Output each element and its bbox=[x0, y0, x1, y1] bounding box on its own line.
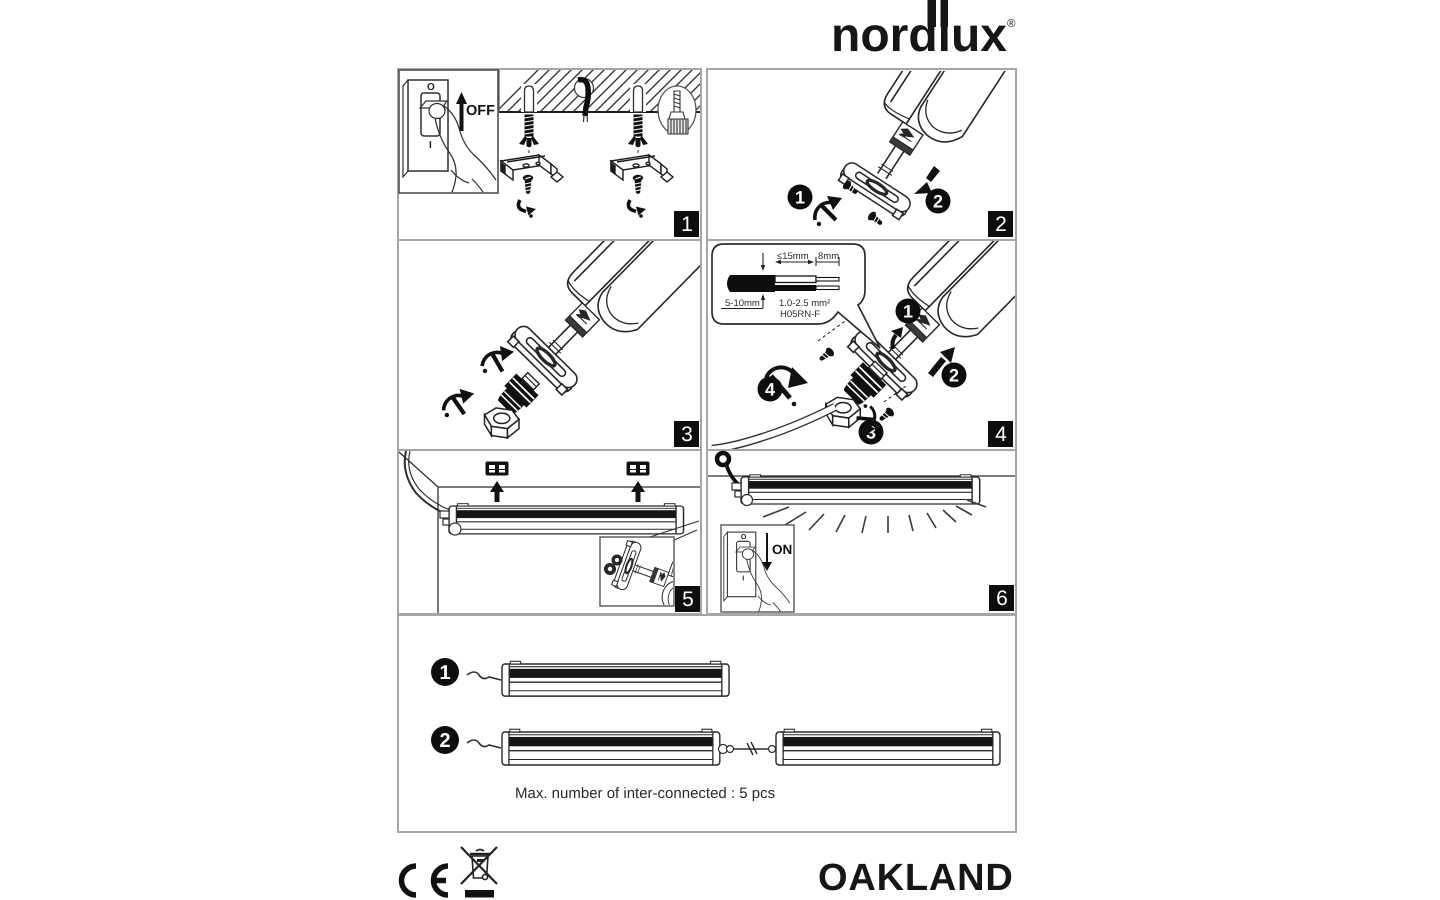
svg-text:3: 3 bbox=[681, 423, 693, 446]
svg-text:2: 2 bbox=[933, 192, 943, 212]
svg-text:1: 1 bbox=[795, 188, 805, 208]
svg-text:2: 2 bbox=[439, 730, 450, 752]
svg-text:nordlux: nordlux bbox=[831, 9, 1007, 62]
svg-text:1: 1 bbox=[903, 302, 913, 322]
svg-text:≤15mm: ≤15mm bbox=[777, 251, 809, 262]
svg-text:6: 6 bbox=[996, 587, 1008, 610]
svg-text:®: ® bbox=[1007, 18, 1016, 30]
svg-text:H05RN-F: H05RN-F bbox=[780, 309, 820, 320]
svg-text:OAKLAND: OAKLAND bbox=[818, 857, 1014, 899]
svg-text:ON: ON bbox=[772, 542, 792, 557]
svg-text:2: 2 bbox=[995, 213, 1007, 236]
svg-text:OFF: OFF bbox=[466, 103, 495, 119]
svg-text:2: 2 bbox=[949, 366, 959, 386]
svg-text:8mm: 8mm bbox=[818, 251, 839, 262]
svg-text:1: 1 bbox=[439, 662, 450, 684]
svg-text:5-10mm: 5-10mm bbox=[725, 298, 760, 309]
svg-text:1.0-2.5 mm²: 1.0-2.5 mm² bbox=[779, 298, 830, 309]
svg-text:1: 1 bbox=[681, 213, 693, 236]
svg-text:4: 4 bbox=[995, 423, 1007, 446]
svg-text:5: 5 bbox=[682, 588, 694, 611]
svg-text:Max. number of inter-connected: Max. number of inter-connected : 5 pcs bbox=[515, 785, 775, 802]
